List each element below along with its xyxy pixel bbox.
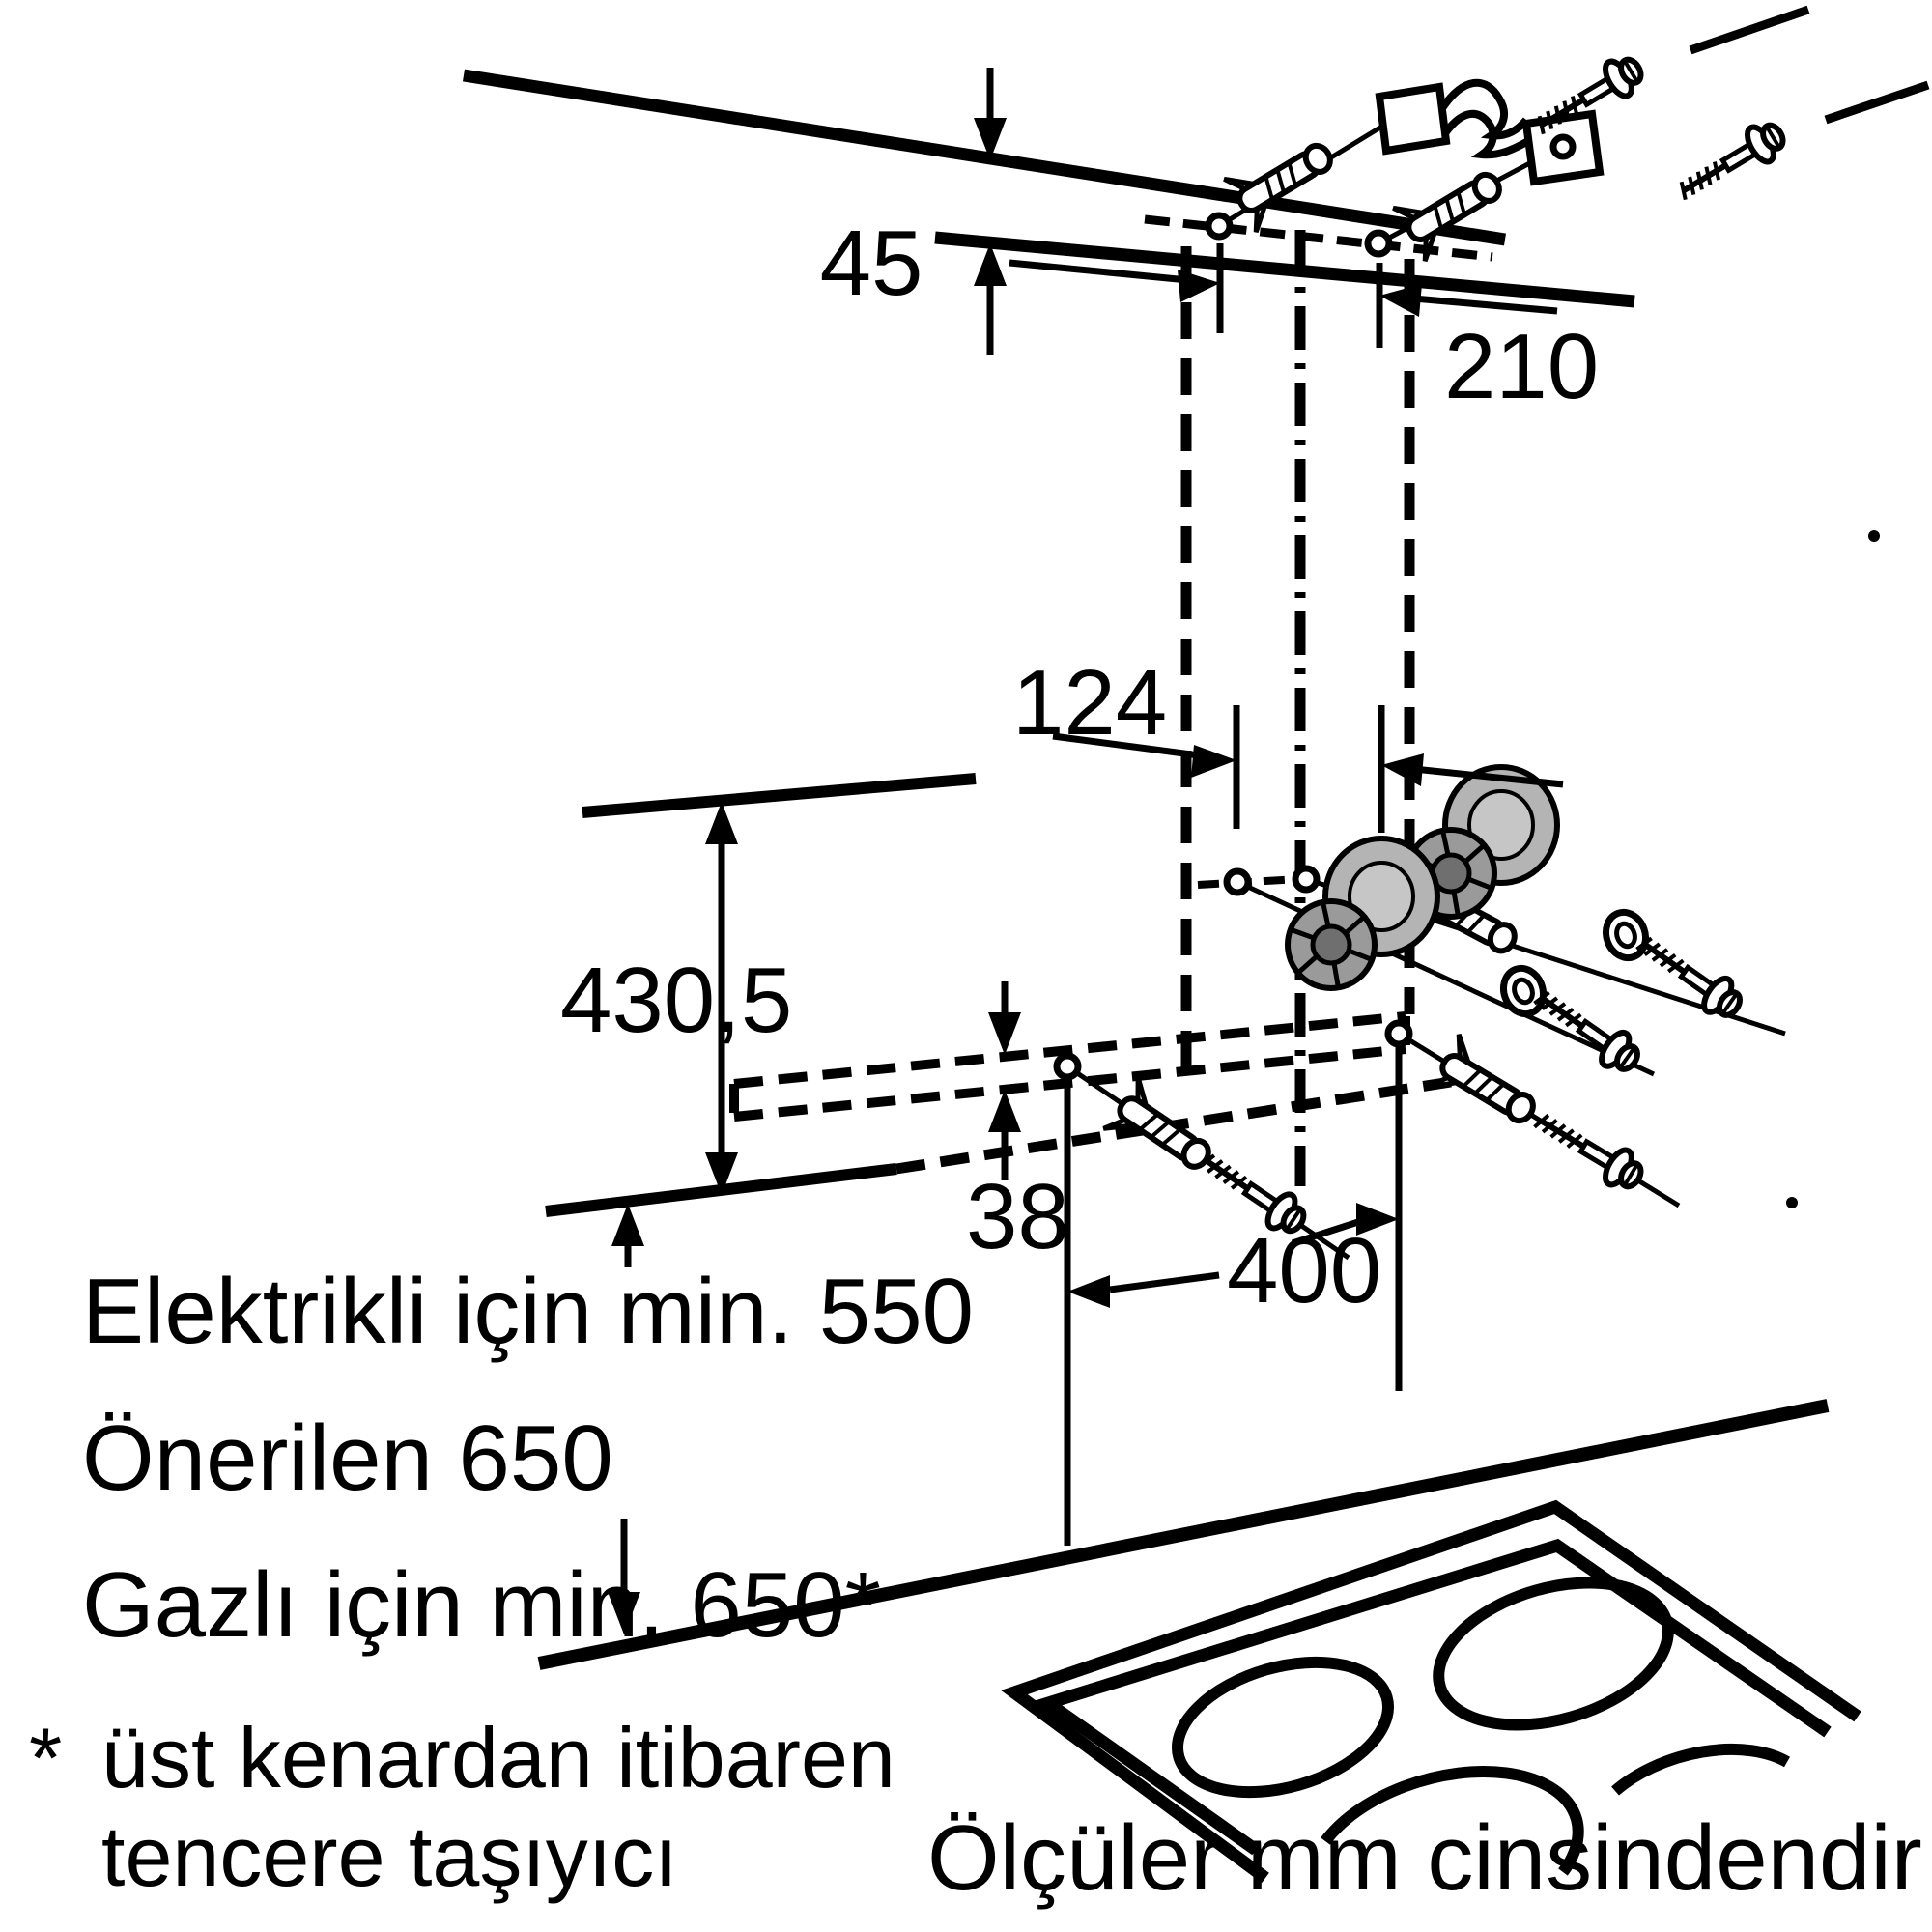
arrow-up-icon <box>705 802 738 844</box>
bracket-hole <box>1553 137 1573 156</box>
dim-label-124: 124 <box>1012 651 1167 754</box>
units-note: Ölçüler mm cinsindendir <box>927 1806 1922 1910</box>
bracket-plate-left <box>1379 87 1446 151</box>
burner-back-left <box>1162 1640 1404 1815</box>
dimension-45: 45 <box>820 68 1007 355</box>
screw-axis-stub-1 <box>1690 10 1808 50</box>
dim-label-45: 45 <box>820 212 923 315</box>
dimension-38: 38 <box>966 981 1069 1268</box>
arrow-right-icon <box>1178 270 1220 302</box>
clearance-note-gas: Gazlı için min. 650* <box>82 1553 881 1657</box>
dim-label-430-5: 430,5 <box>560 949 792 1052</box>
arrow-down-icon <box>988 1012 1021 1055</box>
dim-label-210: 210 <box>1444 315 1599 418</box>
dim-label-38: 38 <box>966 1165 1069 1268</box>
clearance-dimension: Elektrikli için min. 550 Önerilen 650 Ga… <box>82 1204 974 1657</box>
washer-middle-1 <box>1600 907 1652 964</box>
clearance-note-recommended: Önerilen 650 <box>82 1406 613 1510</box>
stray-dot-right <box>1868 530 1880 542</box>
screw-middle-1 <box>1631 926 1747 1025</box>
screw-top-right <box>1671 116 1790 209</box>
screw-middle-2 <box>1528 980 1645 1079</box>
lower-hole-right <box>1388 1023 1409 1044</box>
mid-hole-left <box>1227 871 1248 893</box>
clearance-note-electric: Elektrikli için min. 550 <box>82 1260 974 1363</box>
bracket-strap-upper <box>1442 83 1526 136</box>
burner-front-right-arc <box>1615 1749 1787 1791</box>
arrow-up-icon <box>988 1090 1021 1132</box>
lower-hole-left <box>1057 1056 1078 1077</box>
chimney-outline <box>1186 230 1409 1186</box>
arrow-right-icon <box>1191 745 1236 778</box>
diagram-canvas: 45 210 124 430,5 38 <box>0 0 1932 1932</box>
arrow-left-icon <box>1067 1275 1110 1308</box>
wall-offset-line <box>935 238 1634 301</box>
mid-hole-center <box>1295 868 1317 890</box>
arrow-left-icon <box>1379 284 1422 317</box>
arrow-left-icon <box>1381 753 1424 786</box>
footnote-marker: * <box>29 1710 62 1805</box>
installation-diagram: 45 210 124 430,5 38 <box>0 0 1932 1932</box>
washer-middle-2 <box>1497 963 1549 1020</box>
stray-dot-bottom <box>1786 1197 1798 1208</box>
wall-top-line <box>464 75 1505 240</box>
mounting-bracket <box>1379 83 1600 182</box>
footnote-line1: üst kenardan itibaren <box>101 1710 895 1805</box>
screw-axis-stub-2 <box>1826 85 1928 120</box>
dim-label-400: 400 <box>1227 1219 1381 1322</box>
burner-back-right <box>1422 1558 1685 1749</box>
footnote: * üst kenardan itibaren tencere taşıyıcı <box>29 1710 895 1904</box>
wall-hole-right <box>1368 233 1389 254</box>
arrow-up-icon <box>611 1204 644 1246</box>
wall-plug-top-right <box>1393 156 1513 261</box>
wall-hole-left <box>1208 215 1230 237</box>
screw-bottom-right <box>1529 1103 1648 1196</box>
dimension-430-5: 430,5 <box>560 802 792 1195</box>
chimney-top-reference-line <box>582 779 976 812</box>
footnote-line2: tencere taşıyıcı <box>101 1808 678 1904</box>
